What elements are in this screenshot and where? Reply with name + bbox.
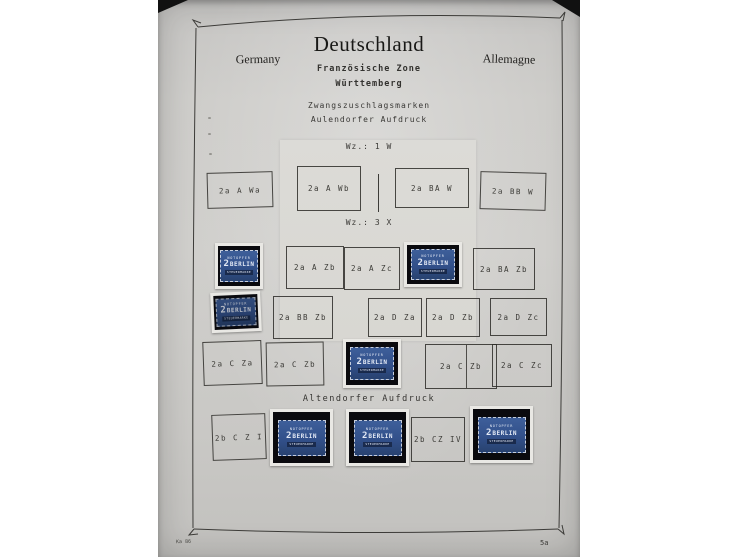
stamp-value: 2 — [356, 358, 361, 367]
notopfer-berlin-stamp: NOTOPFER 2BERLIN STEUERMARKE — [215, 297, 256, 327]
black-mount: NOTOPFER 2BERLIN STEUERMARKE — [218, 246, 260, 286]
stamp-box: 2a BB W — [480, 171, 547, 211]
pencil-dot — [209, 153, 212, 155]
stamp-box: 2a A Zc — [344, 247, 400, 290]
altendorf-heading: Altendorfer Aufdruck — [158, 394, 580, 404]
catalog-label: 2a A Wa — [219, 185, 261, 195]
section-heading-line1: Zwangszuschlagsmarken — [158, 101, 580, 110]
black-mount: NOTOPFER 2BERLIN STEUERMARKE — [349, 412, 406, 463]
mounted-stamp: NOTOPFER 2BERLIN STEUERMARKE — [470, 406, 533, 463]
notopfer-berlin-stamp: NOTOPFER 2BERLIN STEUERMARKE — [220, 250, 258, 282]
stamp-box: 2a C Zc — [492, 344, 552, 387]
black-mount: NOTOPFER 2BERLIN STEUERMARKE — [213, 294, 258, 330]
catalog-label: 2a BB W — [492, 186, 534, 196]
stamp-box: 2a BA W — [395, 168, 469, 208]
notopfer-berlin-stamp: NOTOPFER 2BERLIN STEUERMARKE — [478, 417, 526, 453]
mounted-stamp: NOTOPFER 2BERLIN STEUERMARKE — [215, 243, 263, 289]
stamp-box: 2a A Wb — [297, 166, 361, 211]
black-mount: NOTOPFER 2BERLIN STEUERMARKE — [273, 412, 330, 463]
stamp-value-row: 2BERLIN — [286, 432, 317, 441]
subtitle-region: Württemberg — [158, 79, 580, 89]
stamp-name: BERLIN — [492, 431, 517, 437]
column-tick-mark — [378, 174, 379, 212]
stamp-box: 2a C Zb — [266, 341, 325, 386]
notopfer-berlin-stamp: NOTOPFER 2BERLIN STEUERMARKE — [350, 347, 394, 380]
catalog-label: 2a A Wb — [308, 184, 350, 193]
catalog-label: 2a BA W — [411, 184, 453, 193]
catalog-label: 2a BA Zb — [480, 265, 528, 274]
stamp-value: 2 — [362, 432, 367, 441]
stamp-value-row: 2BERLIN — [223, 260, 254, 269]
stamp-box: 2a BA Zb — [473, 248, 535, 290]
mounted-stamp: NOTOPFER 2BERLIN STEUERMARKE — [270, 409, 333, 466]
stamp-bottom-text: STEUERMARKE — [287, 442, 315, 447]
black-mount: NOTOPFER 2BERLIN STEUERMARKE — [346, 342, 398, 385]
box-divider-line — [466, 345, 467, 388]
stamp-box: 2b C Z I — [211, 413, 267, 461]
stamp-box: 2a D Zc — [490, 298, 547, 336]
stamp-bottom-text: STEUERMARKE — [363, 442, 391, 447]
catalog-label: 2a C Zb — [440, 362, 482, 371]
mounted-stamp: NOTOPFER 2BERLIN STEUERMARKE — [404, 242, 462, 287]
catalog-label: 2a C Zb — [274, 359, 316, 369]
stamp-value-row: 2BERLIN — [356, 358, 387, 367]
catalog-label: 2a C Za — [211, 358, 253, 368]
notopfer-berlin-stamp: NOTOPFER 2BERLIN STEUERMARKE — [278, 420, 326, 456]
stamp-name: BERLIN — [363, 360, 388, 366]
album-page: Deutschland Germany Allemagne Französisc… — [158, 0, 580, 557]
stamp-bottom-text: STEUERMARKE — [225, 270, 253, 275]
stamp-box: 2b CZ IV — [411, 417, 465, 462]
catalog-label: 2b C Z I — [215, 432, 263, 443]
stamp-value-row: 2BERLIN — [362, 432, 393, 441]
mounted-stamp: NOTOPFER 2BERLIN STEUERMARKE — [210, 291, 262, 333]
photo-of-stamp-album-page: Deutschland Germany Allemagne Französisc… — [0, 0, 740, 557]
stamp-value-row: 2BERLIN — [417, 259, 448, 268]
watermark-label-3x: Wz.: 3 X — [158, 218, 580, 227]
notopfer-berlin-stamp: NOTOPFER 2BERLIN STEUERMARKE — [354, 420, 402, 456]
stamp-box: 2a D Zb — [426, 298, 480, 337]
subtitle-zone: Französische Zone — [158, 64, 580, 74]
catalog-label: 2a BB Zb — [279, 313, 327, 322]
stamp-bottom-text: STEUERMARKE — [358, 368, 386, 373]
stamp-bottom-text: STEUERMARKE — [419, 269, 447, 274]
stamp-box: 2a BB Zb — [273, 296, 333, 339]
mounted-stamp: NOTOPFER 2BERLIN STEUERMARKE — [346, 409, 409, 466]
stamp-bottom-text: STEUERMARKE — [487, 439, 515, 444]
watermark-label-1w: Wz.: 1 W — [158, 142, 580, 151]
stamp-name: BERLIN — [230, 262, 255, 268]
catalog-label: 2a A Zc — [351, 264, 393, 273]
stamp-value: 2 — [417, 259, 422, 268]
stamp-name: BERLIN — [424, 261, 449, 267]
catalog-label: 2b CZ IV — [414, 435, 462, 444]
black-mount: NOTOPFER 2BERLIN STEUERMARKE — [407, 245, 459, 284]
printer-code: Ka 86 — [176, 539, 191, 546]
stamp-value-row: 2BERLIN — [220, 306, 251, 316]
stamp-value: 2 — [220, 307, 226, 316]
stamp-value: 2 — [486, 429, 491, 438]
stamp-bottom-text: STEUERMARKE — [222, 316, 250, 322]
stamp-box: 2a D Za — [368, 298, 422, 337]
section-heading-line2: Aulendorfer Aufdruck — [158, 115, 580, 124]
catalog-label: 2a D Zb — [432, 313, 474, 322]
catalog-label: 2a D Zc — [497, 313, 539, 322]
stamp-value: 2 — [223, 260, 228, 269]
stamp-name: BERLIN — [292, 434, 317, 440]
notopfer-berlin-stamp: NOTOPFER 2BERLIN STEUERMARKE — [411, 249, 455, 280]
stamp-value: 2 — [286, 432, 291, 441]
pencil-dot — [208, 117, 211, 119]
stamp-box: 2a A Zb — [286, 246, 344, 289]
catalog-label: 2a A Zb — [294, 263, 336, 272]
catalog-label: 2a D Za — [374, 313, 416, 322]
stamp-name: BERLIN — [368, 434, 393, 440]
catalog-label: 2a C Zc — [501, 361, 543, 370]
page-number: 5a — [540, 539, 548, 547]
pencil-dot — [208, 133, 211, 135]
stamp-name: BERLIN — [227, 308, 252, 315]
stamp-box-double: 2a C Zb — [425, 344, 497, 389]
stamp-value-row: 2BERLIN — [486, 429, 517, 438]
mounted-stamp: NOTOPFER 2BERLIN STEUERMARKE — [343, 339, 401, 388]
black-mount: NOTOPFER 2BERLIN STEUERMARKE — [473, 409, 530, 460]
stamp-box: 2a A Wa — [207, 171, 274, 209]
stamp-box: 2a C Za — [202, 340, 262, 386]
